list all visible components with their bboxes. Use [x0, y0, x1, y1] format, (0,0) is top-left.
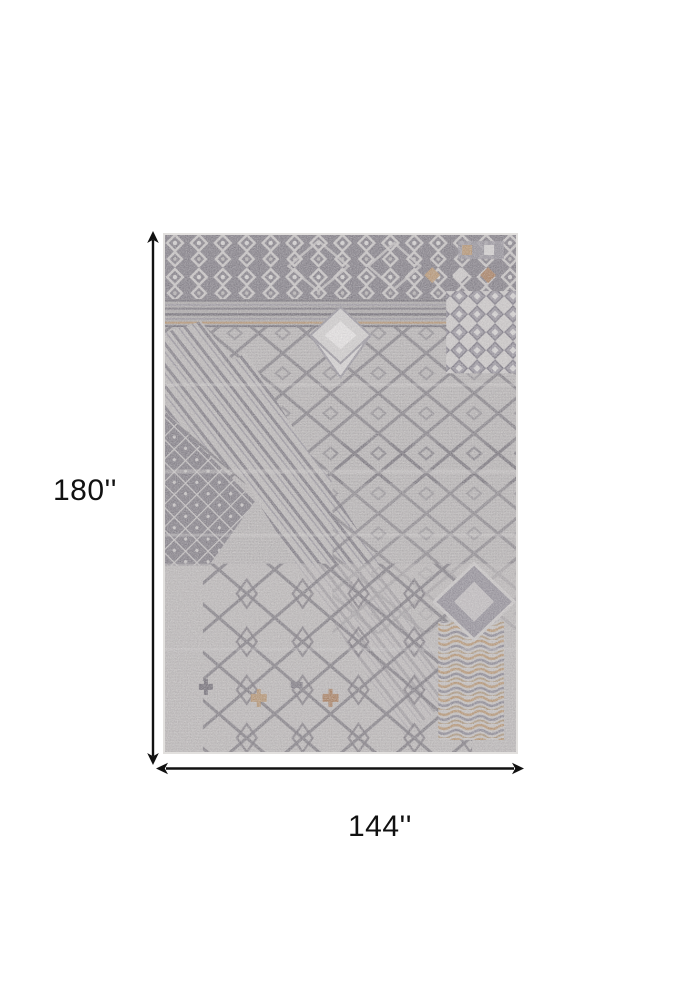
height-dimension-label: 180'' — [40, 474, 130, 508]
width-dimension-arrow — [154, 759, 526, 778]
product-dimension-figure: 180'' 144'' — [0, 0, 682, 1000]
rug-artwork — [163, 233, 518, 754]
rug-image — [163, 233, 518, 754]
width-dimension-label: 144'' — [335, 810, 425, 844]
height-dimension-arrow — [144, 230, 162, 766]
